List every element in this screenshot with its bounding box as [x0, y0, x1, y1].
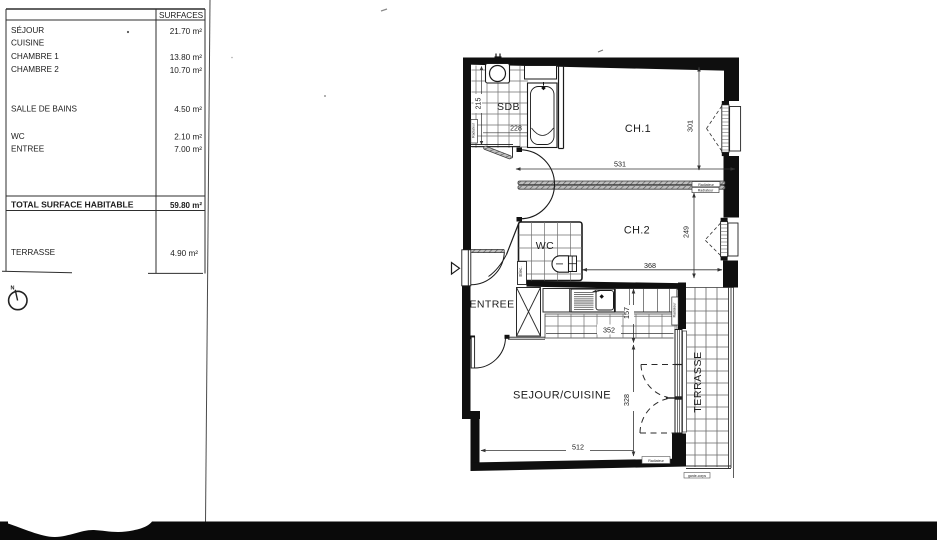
svg-text:Elec.: Elec. [518, 266, 523, 276]
svg-text:59.80 m²: 59.80 m² [170, 201, 202, 210]
svg-text:10.70 m²: 10.70 m² [170, 66, 203, 75]
svg-text:N: N [11, 286, 15, 292]
svg-text:7.00 m²: 7.00 m² [174, 145, 202, 154]
svg-text:249: 249 [682, 226, 691, 238]
svg-text:328: 328 [622, 394, 631, 406]
svg-text:368: 368 [644, 261, 656, 270]
svg-text:TERRASSE: TERRASSE [692, 351, 704, 412]
svg-text:SDB: SDB [497, 101, 520, 113]
svg-text:Radiateur: Radiateur [698, 183, 714, 187]
svg-text:TOTAL SURFACE HABITABLE: TOTAL SURFACE HABITABLE [11, 200, 134, 210]
svg-text:WC: WC [11, 132, 25, 141]
svg-text:SÉJOUR: SÉJOUR [11, 25, 44, 35]
svg-text:SEJOUR/CUISINE: SEJOUR/CUISINE [513, 390, 611, 402]
svg-text:CHAMBRE 1: CHAMBRE 1 [11, 52, 59, 61]
svg-text:CH.2: CH.2 [624, 225, 650, 237]
svg-text:Radiateur: Radiateur [673, 302, 677, 318]
svg-text:13.80 m²: 13.80 m² [170, 53, 203, 62]
svg-text:21.70 m²: 21.70 m² [170, 27, 203, 36]
svg-text:512: 512 [572, 443, 584, 452]
svg-text:SURFACES: SURFACES [159, 11, 204, 20]
svg-text:228: 228 [510, 126, 522, 133]
svg-text:ENTREE: ENTREE [11, 145, 45, 154]
svg-text:2.10 m²: 2.10 m² [174, 133, 202, 142]
svg-text:157: 157 [622, 307, 631, 319]
svg-text:352: 352 [603, 326, 615, 335]
svg-text:215: 215 [476, 98, 483, 110]
svg-text:CUISINE: CUISINE [11, 39, 45, 48]
svg-text:531: 531 [614, 160, 626, 169]
svg-text:TERRASSE: TERRASSE [11, 248, 56, 257]
svg-text:301: 301 [686, 120, 695, 132]
svg-text:ENTREE: ENTREE [470, 299, 515, 311]
svg-text:CHAMBRE 2: CHAMBRE 2 [11, 65, 59, 74]
svg-text:4.50 m²: 4.50 m² [174, 105, 202, 114]
svg-text:Radiateur: Radiateur [472, 122, 476, 138]
svg-text:garde-corps: garde-corps [688, 474, 706, 478]
svg-text:Radiateur: Radiateur [698, 189, 714, 193]
svg-text:WC: WC [536, 240, 555, 252]
svg-text:Radiateur: Radiateur [648, 459, 664, 463]
svg-text:SALLE DE BAINS: SALLE DE BAINS [11, 105, 78, 114]
svg-text:CH.1: CH.1 [625, 123, 651, 135]
svg-text:4.90 m²: 4.90 m² [170, 249, 198, 258]
